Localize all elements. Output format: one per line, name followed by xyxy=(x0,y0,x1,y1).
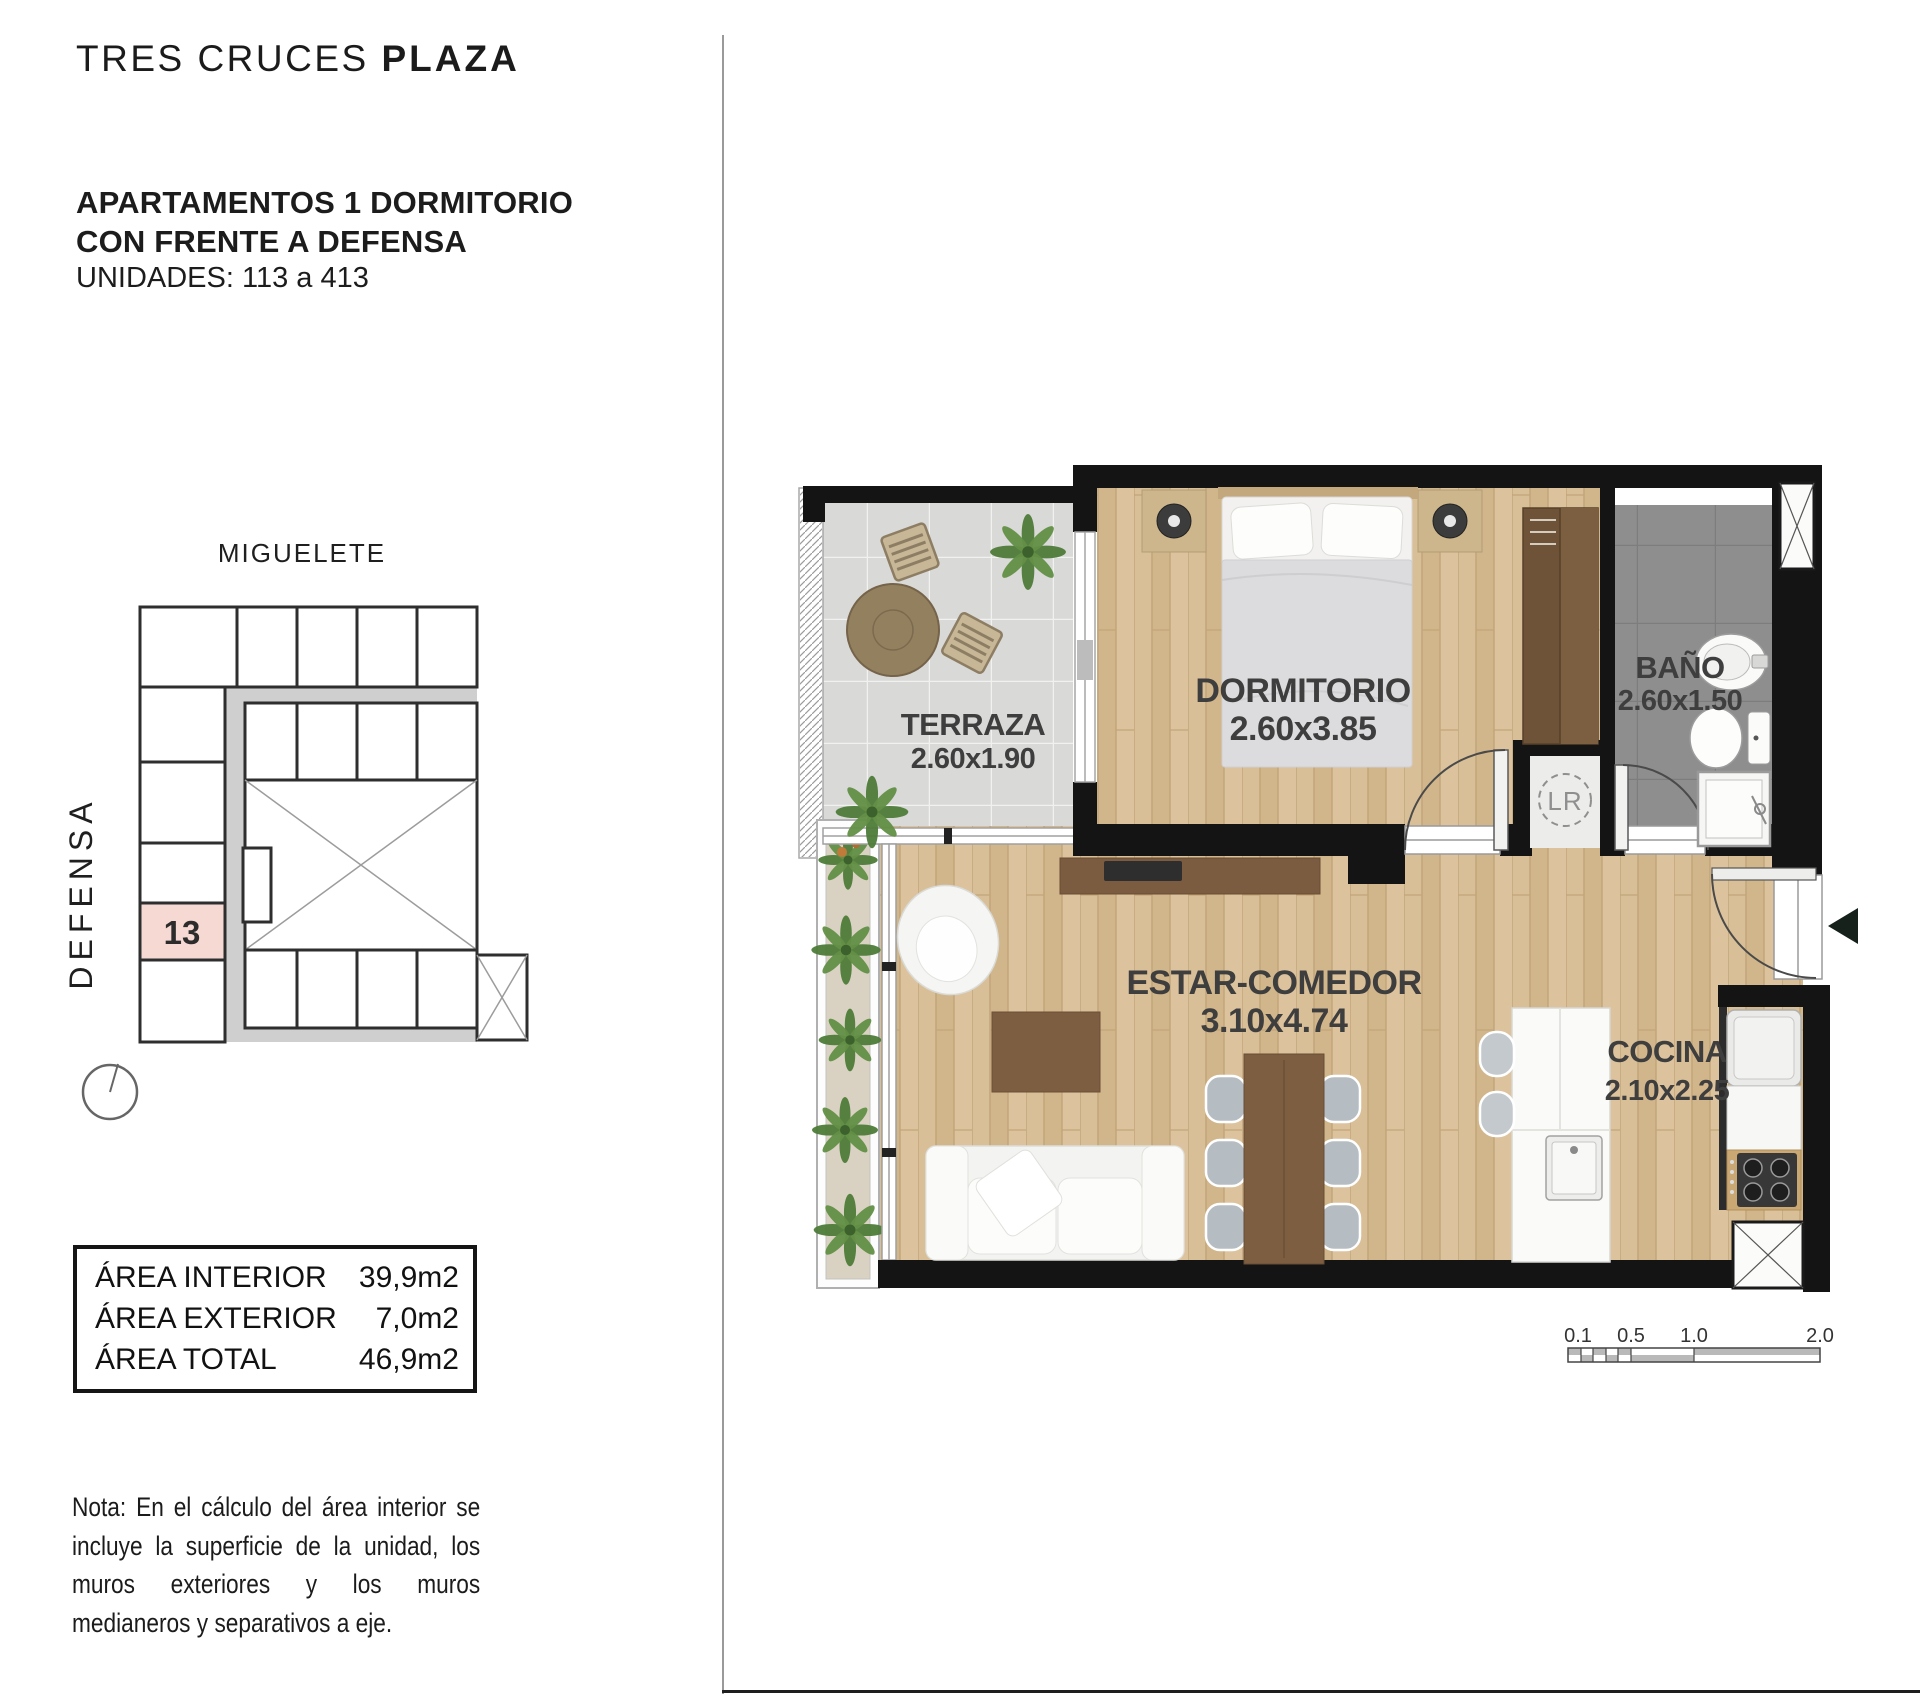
room-label-estar: ESTAR-COMEDOR xyxy=(1126,964,1421,1002)
sofa xyxy=(926,1146,1184,1260)
room-label-cocina: COCINA xyxy=(1607,1034,1726,1069)
area-table: ÁREA INTERIOR 39,9m2 ÁREA EXTERIOR 7,0m2… xyxy=(73,1245,477,1393)
area-row-interior: ÁREA INTERIOR 39,9m2 xyxy=(95,1258,459,1298)
note-line: Nota: En el cálculo del área interior se xyxy=(72,1488,480,1527)
area-label: ÁREA INTERIOR xyxy=(95,1258,327,1298)
street-label-miguelete: MIGUELETE xyxy=(218,538,386,568)
scale-bar: 0.1 0.5 1.0 2.0 xyxy=(1564,1325,1834,1362)
laundry-label: LR xyxy=(1547,786,1582,816)
room-label-terraza: TERRAZA xyxy=(901,707,1046,742)
tv-sideboard xyxy=(1060,858,1320,894)
site-inner-row xyxy=(245,703,477,780)
area-value: 7,0m2 xyxy=(376,1299,459,1339)
planter xyxy=(811,820,886,1288)
units-range: UNIDADES: 113 a 413 xyxy=(76,262,369,295)
site-top-row xyxy=(140,607,477,687)
tv xyxy=(1104,861,1182,881)
terraza-sliding-door xyxy=(1075,532,1095,782)
terraza-railing xyxy=(799,488,823,858)
site-plan: MIGUELETE DEFENSA 13 xyxy=(40,520,550,1140)
area-row-exterior: ÁREA EXTERIOR 7,0m2 xyxy=(95,1299,459,1339)
apartment-floor-plan: LR xyxy=(780,440,1920,1380)
area-value: 46,9m2 xyxy=(359,1340,459,1380)
scale-tick: 1.0 xyxy=(1680,1325,1708,1347)
stove xyxy=(1730,1153,1797,1207)
toilet xyxy=(1690,708,1770,768)
room-dims-dormitorio: 2.60x3.85 xyxy=(1230,710,1377,748)
site-left-column xyxy=(140,687,225,1042)
site-bottom-row xyxy=(245,950,477,1028)
scale-tick: 0.1 xyxy=(1564,1325,1592,1347)
unit-13-label: 13 xyxy=(164,914,201,951)
stool xyxy=(1480,1032,1514,1076)
scale-tick: 2.0 xyxy=(1806,1325,1834,1347)
project-title-regular: TRES CRUCES xyxy=(76,38,369,79)
room-dims-terraza: 2.60x1.90 xyxy=(911,743,1036,775)
laundry-closet: LR xyxy=(1530,756,1600,848)
shower xyxy=(1698,772,1770,846)
entry-arrow-icon xyxy=(1828,908,1858,944)
sheet-title-line1: APARTAMENTOS 1 DORMITORIO xyxy=(76,183,573,222)
room-dims-bano: 2.60x1.50 xyxy=(1618,685,1743,717)
floorplan-sheet: { "header": { "brand": {"regular": "TRES… xyxy=(0,0,1920,1696)
area-label: ÁREA TOTAL xyxy=(95,1340,277,1380)
note-line: muros exteriores y los muros xyxy=(72,1565,480,1604)
dining-set xyxy=(1206,1054,1360,1264)
note-text: Nota: En el cálculo del área interior se… xyxy=(72,1488,480,1642)
shaft-kitchen xyxy=(1733,1222,1803,1288)
counter xyxy=(1727,1086,1801,1150)
scale-tick: 0.5 xyxy=(1617,1325,1645,1347)
room-label-dormitorio: DORMITORIO xyxy=(1195,672,1410,710)
bottom-rule xyxy=(722,1690,1920,1693)
vertical-divider xyxy=(722,35,724,1694)
site-core-notch xyxy=(243,848,271,922)
area-row-total: ÁREA TOTAL 46,9m2 xyxy=(95,1340,459,1380)
area-value: 39,9m2 xyxy=(359,1258,459,1298)
project-title-bold: PLAZA xyxy=(381,38,519,79)
site-shaft xyxy=(477,955,527,1040)
coffee-table xyxy=(992,1012,1100,1092)
note-line: medianeros y separativos a eje. xyxy=(72,1604,480,1643)
room-dims-estar: 3.10x4.74 xyxy=(1201,1002,1348,1040)
wardrobe xyxy=(1523,508,1598,744)
room-dims-cocina: 2.10x2.25 xyxy=(1605,1075,1730,1107)
street-label-defensa: DEFENSA xyxy=(63,796,99,989)
area-label: ÁREA EXTERIOR xyxy=(95,1299,337,1339)
sheet-title-line2: CON FRENTE A DEFENSA xyxy=(76,222,573,261)
room-label-bano: BAÑO xyxy=(1635,650,1724,685)
project-title: TRES CRUCES PLAZA xyxy=(76,38,520,80)
sheet-title: APARTAMENTOS 1 DORMITORIO CON FRENTE A D… xyxy=(76,183,573,261)
stool xyxy=(1480,1092,1514,1136)
compass-icon xyxy=(83,1064,137,1119)
shaft-top xyxy=(1780,483,1814,569)
note-line: incluye la superficie de la unidad, los xyxy=(72,1527,480,1566)
